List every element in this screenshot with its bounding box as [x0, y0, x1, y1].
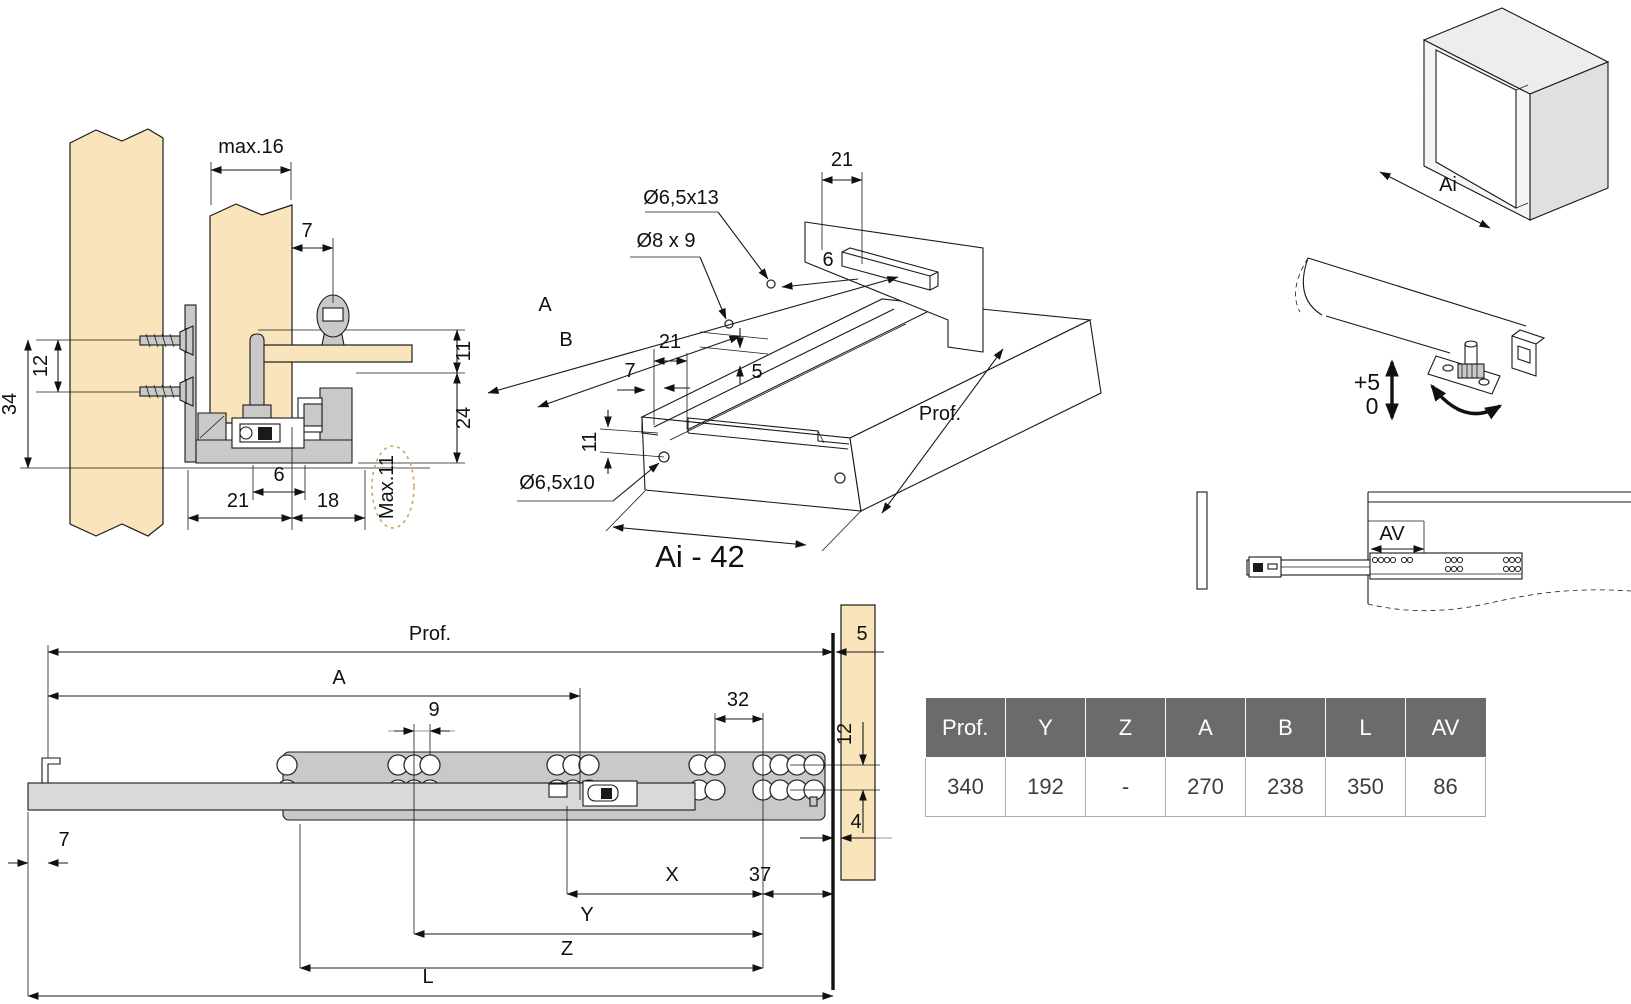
table-header-cell: B [1246, 698, 1326, 758]
table-header-cell: Y [1006, 698, 1086, 758]
label-hole-6-5x13: Ø6,5x13 [643, 187, 719, 209]
dim-label-7: 7 [301, 220, 312, 242]
dim-label-7-front: 7 [624, 360, 635, 382]
dim-label-prof-bottom: Prof. [409, 623, 451, 645]
dim-label-av: AV [1379, 523, 1405, 545]
hole-6-5x13 [767, 280, 775, 288]
table-cell: 350 [1326, 758, 1406, 817]
dim-label-4: 4 [850, 811, 861, 833]
table-header-row: Prof. Y Z A B L AV [926, 698, 1486, 758]
dim-label-Z: Z [561, 938, 573, 960]
cabinet-view: Ai [1380, 8, 1608, 228]
drawer-bottom-panel [252, 345, 412, 362]
table-cell: 192 [1006, 758, 1086, 817]
front-hook [42, 758, 60, 783]
dim-label-21-front: 21 [659, 331, 681, 353]
dim-label-34: 34 [0, 393, 21, 415]
table-header-cell: Prof. [926, 698, 1006, 758]
dim-label-6-iso: 6 [822, 249, 833, 271]
dim-label-18: 18 [317, 490, 339, 512]
dim-label-11-iso: 11 [579, 432, 601, 453]
dim-label-max11: Max.11 [376, 455, 398, 519]
label-hole-8x9: Ø8 x 9 [637, 230, 696, 252]
cabinet-member [1370, 553, 1522, 579]
dim-label-37: 37 [749, 864, 771, 886]
drawer-slide-spec-sheet: max.16 7 12 34 11 24 6 21 18 Max.11 [0, 0, 1631, 1004]
hole-front-right [835, 473, 845, 483]
side-extension-view: AV [1197, 492, 1631, 611]
dim-label-21-top: 21 [831, 149, 853, 171]
dim-label-A-iso: A [538, 294, 552, 316]
table-cell: 238 [1246, 758, 1326, 817]
isometric-drawer-view: 21 Ø6,5x13 Ø8 x 9 6 A B 21 7 5 11 [488, 149, 1101, 574]
table-header-cell: L [1326, 698, 1406, 758]
front-panel [1197, 492, 1207, 589]
table-header-cell: A [1166, 698, 1246, 758]
dim-label-ai42: Ai - 42 [655, 539, 745, 574]
technical-drawing: max.16 7 12 34 11 24 6 21 18 Max.11 [0, 0, 1631, 1004]
dim-label-L: L [422, 966, 433, 988]
dim-label-21: 21 [227, 490, 249, 512]
label-zero: 0 [1366, 393, 1379, 419]
table-cell: 270 [1166, 758, 1246, 817]
table-cell: 86 [1406, 758, 1486, 817]
dim-label-12: 12 [30, 355, 52, 377]
table-header-cell: AV [1406, 698, 1486, 758]
dim-label-7-bottom: 7 [58, 829, 69, 851]
dim-label-Y: Y [580, 904, 593, 926]
label-plus5: +5 [1354, 369, 1380, 395]
dim-label-X: X [665, 864, 678, 886]
adjustment-view: +5 0 [1296, 258, 1545, 419]
dim-label-12-bottom: 12 [834, 723, 856, 745]
dim-label-A-bottom: A [332, 667, 346, 689]
dim-label-max16: max.16 [218, 136, 284, 158]
dim-label-32: 32 [727, 689, 749, 711]
cross-section-view: max.16 7 12 34 11 24 6 21 18 Max.11 [0, 129, 475, 536]
slide-length-view: Prof. 5 A 9 32 12 4 7 X 37 Y [8, 605, 892, 996]
dim-label-5-iso: 5 [751, 361, 762, 383]
dim-label-B-iso: B [559, 329, 572, 351]
dim-label-5-bottom: 5 [856, 623, 867, 645]
table-header-cell: Z [1086, 698, 1166, 758]
dim-label-6: 6 [273, 464, 284, 486]
table-cell: 340 [926, 758, 1006, 817]
table-cell: - [1086, 758, 1166, 817]
dimension-spec-table: Prof. Y Z A B L AV 340 192 - 270 238 350… [925, 698, 1486, 817]
dim-label-prof-iso: Prof. [919, 403, 961, 425]
dim-label-11: 11 [453, 341, 475, 362]
dim-label-ai: Ai [1439, 174, 1457, 196]
table-row: 340 192 - 270 238 350 86 [926, 758, 1486, 817]
cabinet-side-panel [70, 129, 163, 536]
dim-label-24: 24 [453, 407, 475, 429]
dim-label-9: 9 [428, 699, 439, 721]
label-hole-6-5x10: Ø6,5x10 [519, 472, 595, 494]
